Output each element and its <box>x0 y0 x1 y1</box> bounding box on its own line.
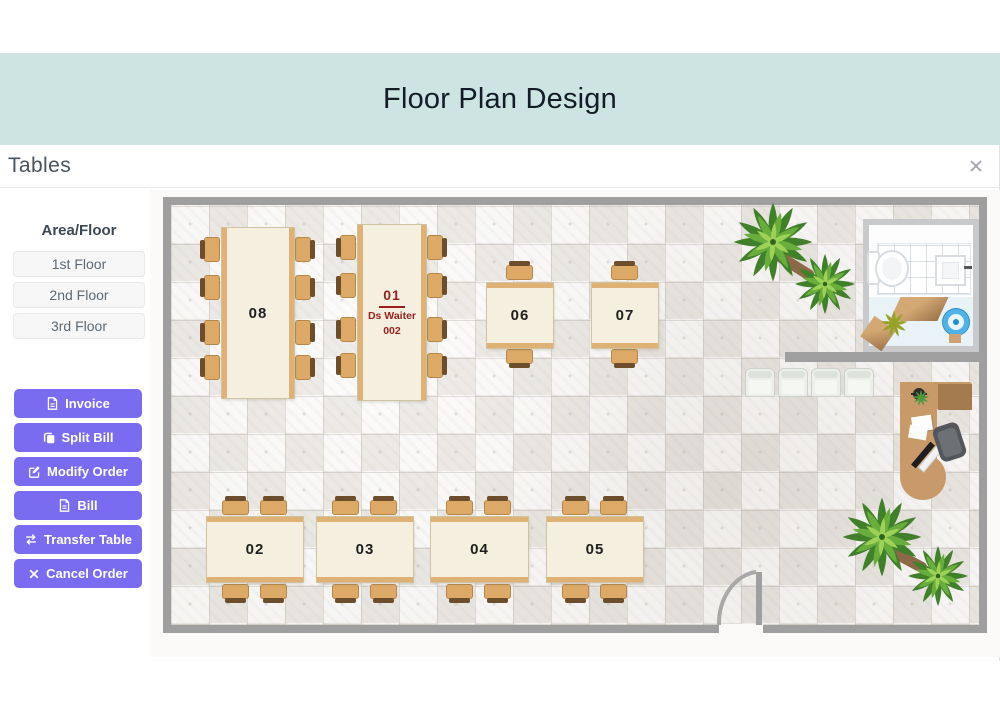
table-number: 05 <box>586 541 605 558</box>
bathroom <box>863 219 979 352</box>
chair <box>611 349 638 364</box>
transfer-table-label: Transfer Table <box>44 532 132 547</box>
chair <box>427 317 443 342</box>
close-icon <box>28 568 40 580</box>
cancel-order-label: Cancel Order <box>46 566 128 581</box>
chair <box>506 265 533 280</box>
transfer-table-button[interactable]: Transfer Table <box>14 525 142 554</box>
file-icon <box>46 397 59 410</box>
palm-plant <box>793 252 857 316</box>
floor-button-3rd[interactable]: 3rd Floor <box>13 313 145 339</box>
chair <box>340 353 356 378</box>
floor-plan: 08 01 Ds Waiter 002 06 <box>163 197 987 633</box>
table-number: 03 <box>356 541 375 558</box>
table-08[interactable]: 08 <box>222 228 294 398</box>
split-bill-button[interactable]: Split Bill <box>14 423 142 452</box>
chair <box>370 584 397 599</box>
table-07[interactable]: 07 <box>592 283 658 348</box>
chair <box>204 275 220 300</box>
chair <box>506 349 533 364</box>
chair <box>204 237 220 262</box>
table-number: 06 <box>511 307 530 324</box>
toilet-bowl <box>875 250 909 287</box>
table-waiter-id: 002 <box>383 325 401 338</box>
door-swing-arc <box>711 563 775 627</box>
chair <box>562 500 589 515</box>
chair <box>295 237 311 262</box>
order-actions: Invoice Split Bill Modify Order Bill Tra… <box>14 389 142 593</box>
chair <box>332 584 359 599</box>
table-04[interactable]: 04 <box>431 517 528 582</box>
chair <box>427 273 443 298</box>
floor-button-1st[interactable]: 1st Floor <box>13 251 145 277</box>
invoice-label: Invoice <box>65 396 110 411</box>
chair <box>222 500 249 515</box>
waiting-chair <box>811 368 841 397</box>
desk-plant <box>912 389 930 407</box>
waiting-chair <box>778 368 808 397</box>
file-icon <box>58 499 71 512</box>
table-number: 04 <box>470 541 489 558</box>
desk-shelf <box>938 384 972 410</box>
chair <box>600 584 627 599</box>
floor-plan-app: Floor Plan Design Tables Area/Floor 1st … <box>0 0 1000 709</box>
chair <box>427 353 443 378</box>
chair <box>484 584 511 599</box>
close-icon[interactable] <box>967 157 985 175</box>
chair <box>295 320 311 345</box>
chair <box>204 355 220 380</box>
split-bill-label: Split Bill <box>62 430 114 445</box>
chair <box>260 584 287 599</box>
modify-order-button[interactable]: Modify Order <box>14 457 142 486</box>
chair <box>222 584 249 599</box>
invoice-button[interactable]: Invoice <box>14 389 142 418</box>
chair <box>446 500 473 515</box>
palm-plant <box>906 544 970 608</box>
transfer-arrows-icon <box>24 533 38 546</box>
chair <box>340 235 356 260</box>
edit-icon <box>28 465 41 478</box>
table-06[interactable]: 06 <box>487 283 553 348</box>
chair <box>340 273 356 298</box>
chair <box>204 320 220 345</box>
round-basin <box>943 309 969 335</box>
waiting-chair <box>745 368 775 397</box>
page-title-band: Floor Plan Design <box>0 53 1000 145</box>
table-05[interactable]: 05 <box>547 517 643 582</box>
bathroom-sink <box>935 255 966 286</box>
chair <box>611 265 638 280</box>
table-number: 01 <box>379 287 405 308</box>
table-03[interactable]: 03 <box>317 517 413 582</box>
chair <box>484 500 511 515</box>
sidebar: Area/Floor 1st Floor 2nd Floor 3rd Floor <box>13 222 145 344</box>
partition-wall <box>785 352 979 362</box>
copy-icon <box>43 431 56 444</box>
table-02[interactable]: 02 <box>207 517 303 582</box>
tables-panel-header: Tables <box>0 145 999 188</box>
faucet <box>964 266 972 269</box>
waiting-chair <box>844 368 874 397</box>
chair <box>600 500 627 515</box>
reception-desk <box>900 382 974 502</box>
chair <box>295 355 311 380</box>
small-plant <box>879 309 909 339</box>
cancel-order-button[interactable]: Cancel Order <box>14 559 142 588</box>
chair <box>340 317 356 342</box>
bill-label: Bill <box>77 498 97 513</box>
floor-plan-interior: 08 01 Ds Waiter 002 06 <box>171 205 979 625</box>
chair <box>446 584 473 599</box>
table-01-label: 01 Ds Waiter 002 <box>368 287 416 338</box>
chair <box>562 584 589 599</box>
chair <box>427 235 443 260</box>
table-number: 07 <box>616 307 635 324</box>
basin-stand <box>949 334 961 343</box>
table-number: 02 <box>246 541 265 558</box>
chair <box>295 275 311 300</box>
page-title: Floor Plan Design <box>383 83 617 116</box>
table-waiter-name: Ds Waiter <box>368 310 416 323</box>
bill-button[interactable]: Bill <box>14 491 142 520</box>
panel-title: Tables <box>8 154 71 178</box>
chair <box>260 500 287 515</box>
floor-button-2nd[interactable]: 2nd Floor <box>13 282 145 308</box>
table-01[interactable]: 01 Ds Waiter 002 <box>358 225 426 400</box>
area-floor-heading: Area/Floor <box>13 222 145 239</box>
modify-order-label: Modify Order <box>47 464 128 479</box>
chair <box>370 500 397 515</box>
table-number: 08 <box>249 305 268 322</box>
chair <box>332 500 359 515</box>
